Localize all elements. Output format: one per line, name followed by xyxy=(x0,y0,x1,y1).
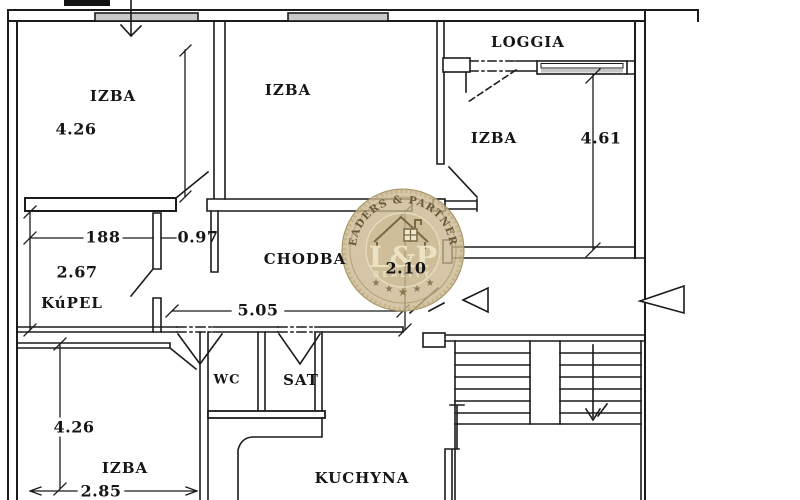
door-swing-room-top-left xyxy=(176,172,208,198)
floor-plan-drawing: LEADERS & PARTNERS L&P REALITY ★ ★ ★ ★ ★ xyxy=(0,0,800,500)
room-label-wc: WC xyxy=(214,373,241,388)
loggia-door-opening xyxy=(470,61,516,71)
direction-triangles xyxy=(463,286,684,313)
floor-plan: LEADERS & PARTNERS L&P REALITY ★ ★ ★ ★ ★… xyxy=(0,0,800,500)
room-label-izba-top-right: IZBA xyxy=(471,129,517,147)
dimension-4-26-top: 4.26 xyxy=(54,120,99,139)
windows xyxy=(95,13,388,21)
svg-text:★: ★ xyxy=(398,285,409,299)
door-swing-sat xyxy=(279,334,320,364)
room-label-chodba: CHODBA xyxy=(264,250,347,268)
svg-text:★: ★ xyxy=(372,278,381,289)
room-label-izba-top-middle: IZBA xyxy=(265,81,311,99)
scan-artifact xyxy=(64,0,110,6)
dimension-5-05: 5.05 xyxy=(236,301,281,320)
room-label-loggia: LOGGIA xyxy=(491,33,565,51)
room-label-kuchyna: KUCHYNA xyxy=(315,469,410,487)
building-entry-triangle-icon xyxy=(640,286,684,313)
room-label-izba-bottom: IZBA xyxy=(102,459,148,477)
dimension-4-61: 4.61 xyxy=(581,129,622,148)
dimension-4-26-bottom: 4.26 xyxy=(52,418,97,437)
entrance-triangle-icon xyxy=(463,288,488,312)
dimension-lines xyxy=(24,45,600,495)
doors xyxy=(131,61,516,369)
staircase xyxy=(455,341,641,500)
door-swing-room-top-right xyxy=(449,167,477,197)
dimension-0-97: 0.97 xyxy=(178,228,219,247)
door-swing-room-bottom-left xyxy=(170,348,196,369)
loggia-door-swing xyxy=(468,70,516,102)
dimension-2-85: 2.85 xyxy=(79,482,124,500)
room-label-sat: SAT xyxy=(283,371,319,389)
room-label-kupel: KúPEL xyxy=(41,294,103,312)
room-label-izba-top-left: IZBA xyxy=(90,87,136,105)
door-swing-bathroom xyxy=(131,269,153,296)
window-top-left xyxy=(95,13,198,21)
svg-text:★: ★ xyxy=(385,284,394,295)
dimension-188: 188 xyxy=(84,228,123,247)
svg-text:★: ★ xyxy=(426,278,435,289)
svg-text:★: ★ xyxy=(413,284,422,295)
dimension-2-67: 2.67 xyxy=(55,263,100,282)
dimension-2-10: 2.10 xyxy=(386,259,427,278)
window-top-middle xyxy=(288,13,388,21)
